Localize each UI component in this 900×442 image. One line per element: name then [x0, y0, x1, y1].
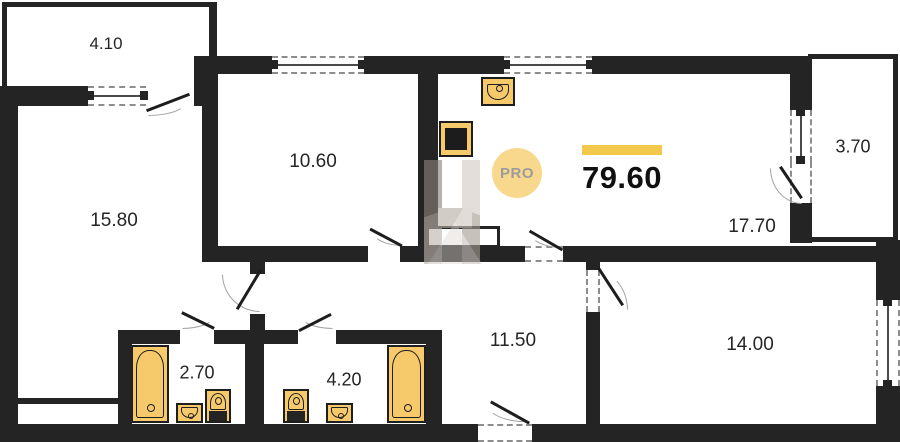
sink-icon	[326, 403, 353, 423]
room-label-kitchen-living: 17.70	[728, 216, 776, 238]
window	[790, 110, 812, 162]
room-label-hallway: 11.50	[490, 330, 536, 352]
wall	[563, 246, 890, 262]
wall	[364, 56, 504, 74]
window	[88, 86, 146, 106]
floor-plan: PRO 79.60 4.10 15.80 10.60 17.70 3.70 11…	[0, 0, 900, 442]
toilet-icon	[205, 389, 231, 423]
room-label-room-left: 15.80	[90, 210, 138, 232]
wall	[592, 56, 812, 74]
wall	[250, 314, 265, 330]
entrance-opening	[478, 424, 532, 442]
wall	[245, 330, 264, 424]
wall	[532, 424, 900, 442]
wall	[0, 86, 18, 442]
wall	[586, 312, 600, 424]
wall	[426, 330, 442, 424]
kitchen-sink-icon	[481, 77, 515, 106]
window	[272, 56, 364, 74]
bathtub-icon	[387, 345, 426, 423]
wall	[790, 56, 812, 110]
stove-icon	[439, 121, 473, 157]
watermark-logo	[424, 160, 486, 264]
wall	[118, 330, 132, 424]
area-accent-bar	[582, 145, 662, 155]
pro-badge: PRO	[492, 148, 542, 198]
window	[504, 56, 592, 74]
wall	[876, 386, 900, 424]
wall	[0, 424, 478, 442]
room-label-room-right: 14.00	[726, 334, 774, 356]
sink-icon	[176, 403, 203, 423]
wall	[18, 398, 118, 404]
room-label-bathroom-large: 4.20	[326, 370, 361, 391]
toilet-icon	[283, 389, 309, 423]
room-label-balcony-top: 4.10	[89, 34, 122, 54]
bathtub-icon	[131, 345, 169, 423]
room-label-room-top: 10.60	[289, 151, 337, 173]
wall	[336, 330, 430, 344]
wall	[202, 74, 218, 246]
total-area-label: 79.60	[572, 160, 672, 196]
wall	[118, 330, 180, 344]
wall	[0, 86, 88, 106]
wall	[790, 203, 812, 243]
wall	[211, 2, 217, 56]
room-label-bathroom-small: 2.70	[179, 363, 214, 384]
wall	[202, 246, 368, 262]
room-label-balcony-right: 3.70	[835, 137, 870, 158]
window	[876, 300, 900, 386]
